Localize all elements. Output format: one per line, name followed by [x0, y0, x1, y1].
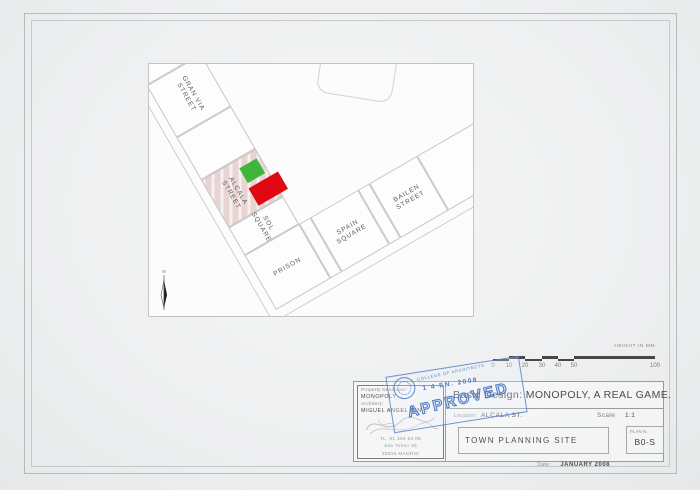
drawing-name: TOWN PLANNING SITE: [459, 436, 578, 445]
scale-tick-50: 50: [568, 363, 580, 369]
drawing-name-box: TOWN PLANNING SITE: [458, 427, 609, 454]
scale-segment: [542, 356, 558, 359]
pond-outline: [316, 63, 399, 104]
north-label: N: [162, 269, 165, 274]
north-arrow-icon: N: [157, 268, 171, 312]
scale-tick-100: 100: [649, 363, 661, 369]
scale-tick-40: 40: [552, 363, 564, 369]
architect-address2: 28016 MADRID: [358, 451, 443, 458]
street-label-prison: PRISON: [272, 256, 303, 278]
scale-value: 1:1: [625, 412, 635, 419]
monopoly-house-green: [239, 158, 265, 183]
scale-segment: [574, 356, 655, 359]
street-label-bailen: BAILEN STREET: [391, 182, 427, 212]
scale-segment: [558, 359, 574, 362]
architect-label: Architect:: [361, 402, 383, 407]
scale-bar-caption: HEIGHT IN MM.: [614, 344, 657, 349]
architect-phone: TL. 91 394 53 05: [358, 436, 443, 443]
plan-label: PLAN N:: [630, 429, 648, 434]
scale-label: Scale: [597, 412, 615, 419]
street-label-alcala: ALCALA STREET: [219, 175, 249, 211]
plan-number-box: PLAN N: B0-S: [626, 426, 664, 454]
site-map: GRAN VIA STREET ALCALA STREET SOL SQUARE: [148, 63, 474, 317]
architect-contact: TL. 91 394 53 05 San Telmo 36 28016 MADR…: [358, 436, 443, 458]
date-value: JANUARY 2008: [560, 462, 610, 468]
date-label: Date:: [537, 462, 550, 468]
seal-icon: [392, 375, 417, 400]
plan-number: B0-S: [627, 437, 663, 447]
street-label-gran-via: GRAN VIA STREET: [172, 75, 206, 117]
seal-inner-ring: [396, 380, 412, 396]
architect-address1: San Telmo 36: [358, 443, 443, 450]
scale-segment: [525, 359, 542, 362]
drawing-sheet: GRAN VIA STREET ALCALA STREET SOL SQUARE: [0, 0, 700, 490]
street-label-spain: SPAIN SQUARE: [331, 216, 368, 247]
date-row: Date: JANUARY 2008: [458, 453, 610, 471]
scale-tick-30: 30: [536, 363, 548, 369]
